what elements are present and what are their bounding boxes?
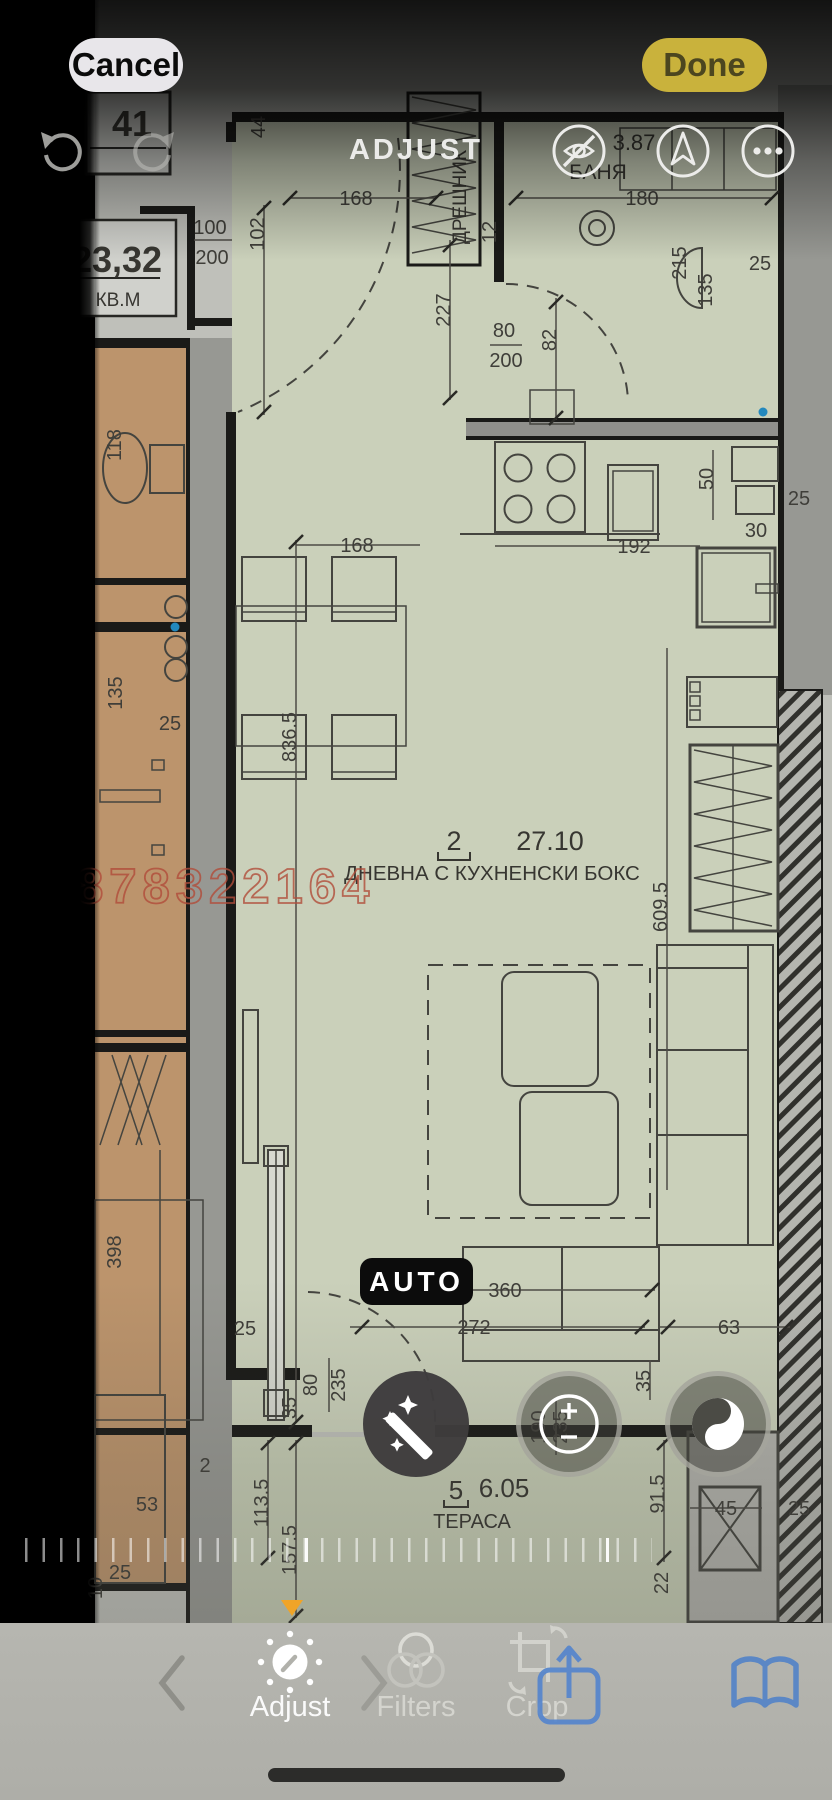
dim-label: 45 — [715, 1498, 737, 1520]
dim-label: 63 — [718, 1317, 740, 1339]
terrace-number-label: 5 — [449, 1475, 463, 1505]
brilliance-icon — [670, 1376, 766, 1472]
home-indicator[interactable] — [268, 1768, 565, 1782]
undo-icon[interactable] — [33, 122, 89, 178]
tab-filters-label[interactable]: Filters — [366, 1691, 466, 1724]
room-name-label: ДНЕВНА С КУХНЕНСКИ БОКС — [344, 862, 640, 885]
dim-label: 35 — [279, 1397, 301, 1419]
dim-label: 91.5 — [647, 1475, 669, 1514]
room-number-label: 2 — [446, 826, 461, 856]
dim-label: 80 — [300, 1374, 322, 1396]
unit-area-unit-label: КВ.М — [96, 290, 141, 311]
dim-label: 12 — [479, 221, 501, 243]
riser-dot — [171, 623, 180, 632]
corridor-strip — [188, 338, 232, 1623]
hide-adjustments-icon[interactable] — [551, 123, 607, 179]
hatched-wall — [778, 690, 822, 1623]
dim-label: 25 — [109, 1562, 131, 1584]
dim-label: 50 — [696, 468, 718, 490]
dim-label: 25 — [749, 253, 771, 275]
dim-label: 82 — [539, 329, 561, 351]
riser-dot-2 — [759, 408, 768, 417]
dim-label: 235 — [328, 1368, 350, 1401]
dim-label: 192 — [617, 536, 650, 558]
dim-label: 25 — [788, 488, 810, 510]
dim-label: 215 — [669, 246, 691, 279]
brilliance-button[interactable] — [665, 1371, 771, 1477]
floorplan-photo: 168 100 200 102 44 227 80 200 82 180 215… — [0, 0, 832, 1800]
unit-area-label: 23,32 — [72, 239, 162, 280]
slider-major-tick — [305, 1538, 308, 1562]
dim-label: 135 — [105, 676, 127, 709]
auto-label: AUTO — [369, 1266, 464, 1298]
slider-major-tick — [606, 1538, 609, 1562]
dim-label: 53 — [136, 1494, 158, 1516]
tab-filters[interactable] — [378, 1626, 454, 1698]
dim-label: 609.5 — [650, 882, 672, 932]
dim-label: 157.5 — [279, 1525, 301, 1575]
dim-label: 35 — [633, 1370, 655, 1392]
done-button[interactable]: Done — [642, 38, 767, 92]
dim-label: 272 — [457, 1317, 490, 1339]
exposure-icon — [521, 1376, 617, 1472]
dim-label: 135 — [695, 273, 717, 306]
share-icon[interactable] — [534, 1642, 604, 1728]
dim-label: 2 — [199, 1455, 210, 1477]
tab-adjust[interactable] — [250, 1626, 330, 1698]
dim-label: 113.5 — [251, 1479, 273, 1528]
cancel-label: Cancel — [72, 46, 180, 84]
dim-label: 25 — [234, 1318, 256, 1340]
filters-icon — [378, 1626, 454, 1698]
dim-label: 227 — [433, 293, 455, 326]
dim-label: 80 — [493, 320, 515, 342]
done-label: Done — [663, 46, 746, 84]
dim-label: 398 — [104, 1235, 126, 1268]
dim-label: 168 — [339, 188, 372, 210]
dim-label: 360 — [488, 1280, 521, 1302]
apartment-interior — [232, 122, 778, 1432]
more-options-icon[interactable] — [740, 123, 796, 179]
tab-adjust-label[interactable]: Adjust — [240, 1691, 340, 1724]
markup-pen-icon[interactable] — [655, 123, 711, 179]
dim-label: 180 — [625, 188, 658, 210]
dim-label: 100 — [193, 217, 226, 239]
chevron-left-icon[interactable] — [152, 1652, 190, 1714]
dim-label: 22 — [651, 1572, 673, 1594]
dim-label: 30 — [745, 520, 767, 542]
redo-icon[interactable] — [126, 122, 182, 178]
dim-label: 836.5 — [279, 712, 301, 762]
neighbour-unit — [95, 345, 188, 1590]
terrace-area-label: 6.05 — [479, 1473, 530, 1503]
terrace-name-label: ТЕРАСА — [433, 1511, 511, 1533]
auto-badge: AUTO — [360, 1258, 473, 1305]
dim-label: 25 — [159, 713, 181, 735]
dim-label: 102 — [247, 217, 269, 250]
exposure-button[interactable] — [516, 1371, 622, 1477]
slider-indicator-triangle[interactable] — [281, 1600, 303, 1616]
dim-label: 168 — [340, 535, 373, 557]
dim-label: 200 — [489, 350, 522, 372]
magic-wand-icon — [363, 1371, 469, 1477]
cancel-button[interactable]: Cancel — [69, 38, 183, 92]
watermark-text: 0878322164 — [43, 860, 376, 914]
adjust-dial-icon — [250, 1626, 330, 1698]
kitchen-bath-wall — [466, 422, 778, 436]
dim-label: 118 — [104, 429, 126, 461]
dim-label: 200 — [195, 247, 228, 269]
book-icon[interactable] — [726, 1653, 804, 1719]
dim-label: 10 — [85, 1577, 107, 1599]
room-area-label: 27.10 — [516, 826, 584, 856]
dim-label: 25 — [788, 1498, 810, 1520]
auto-enhance-wand-button[interactable] — [363, 1371, 469, 1477]
